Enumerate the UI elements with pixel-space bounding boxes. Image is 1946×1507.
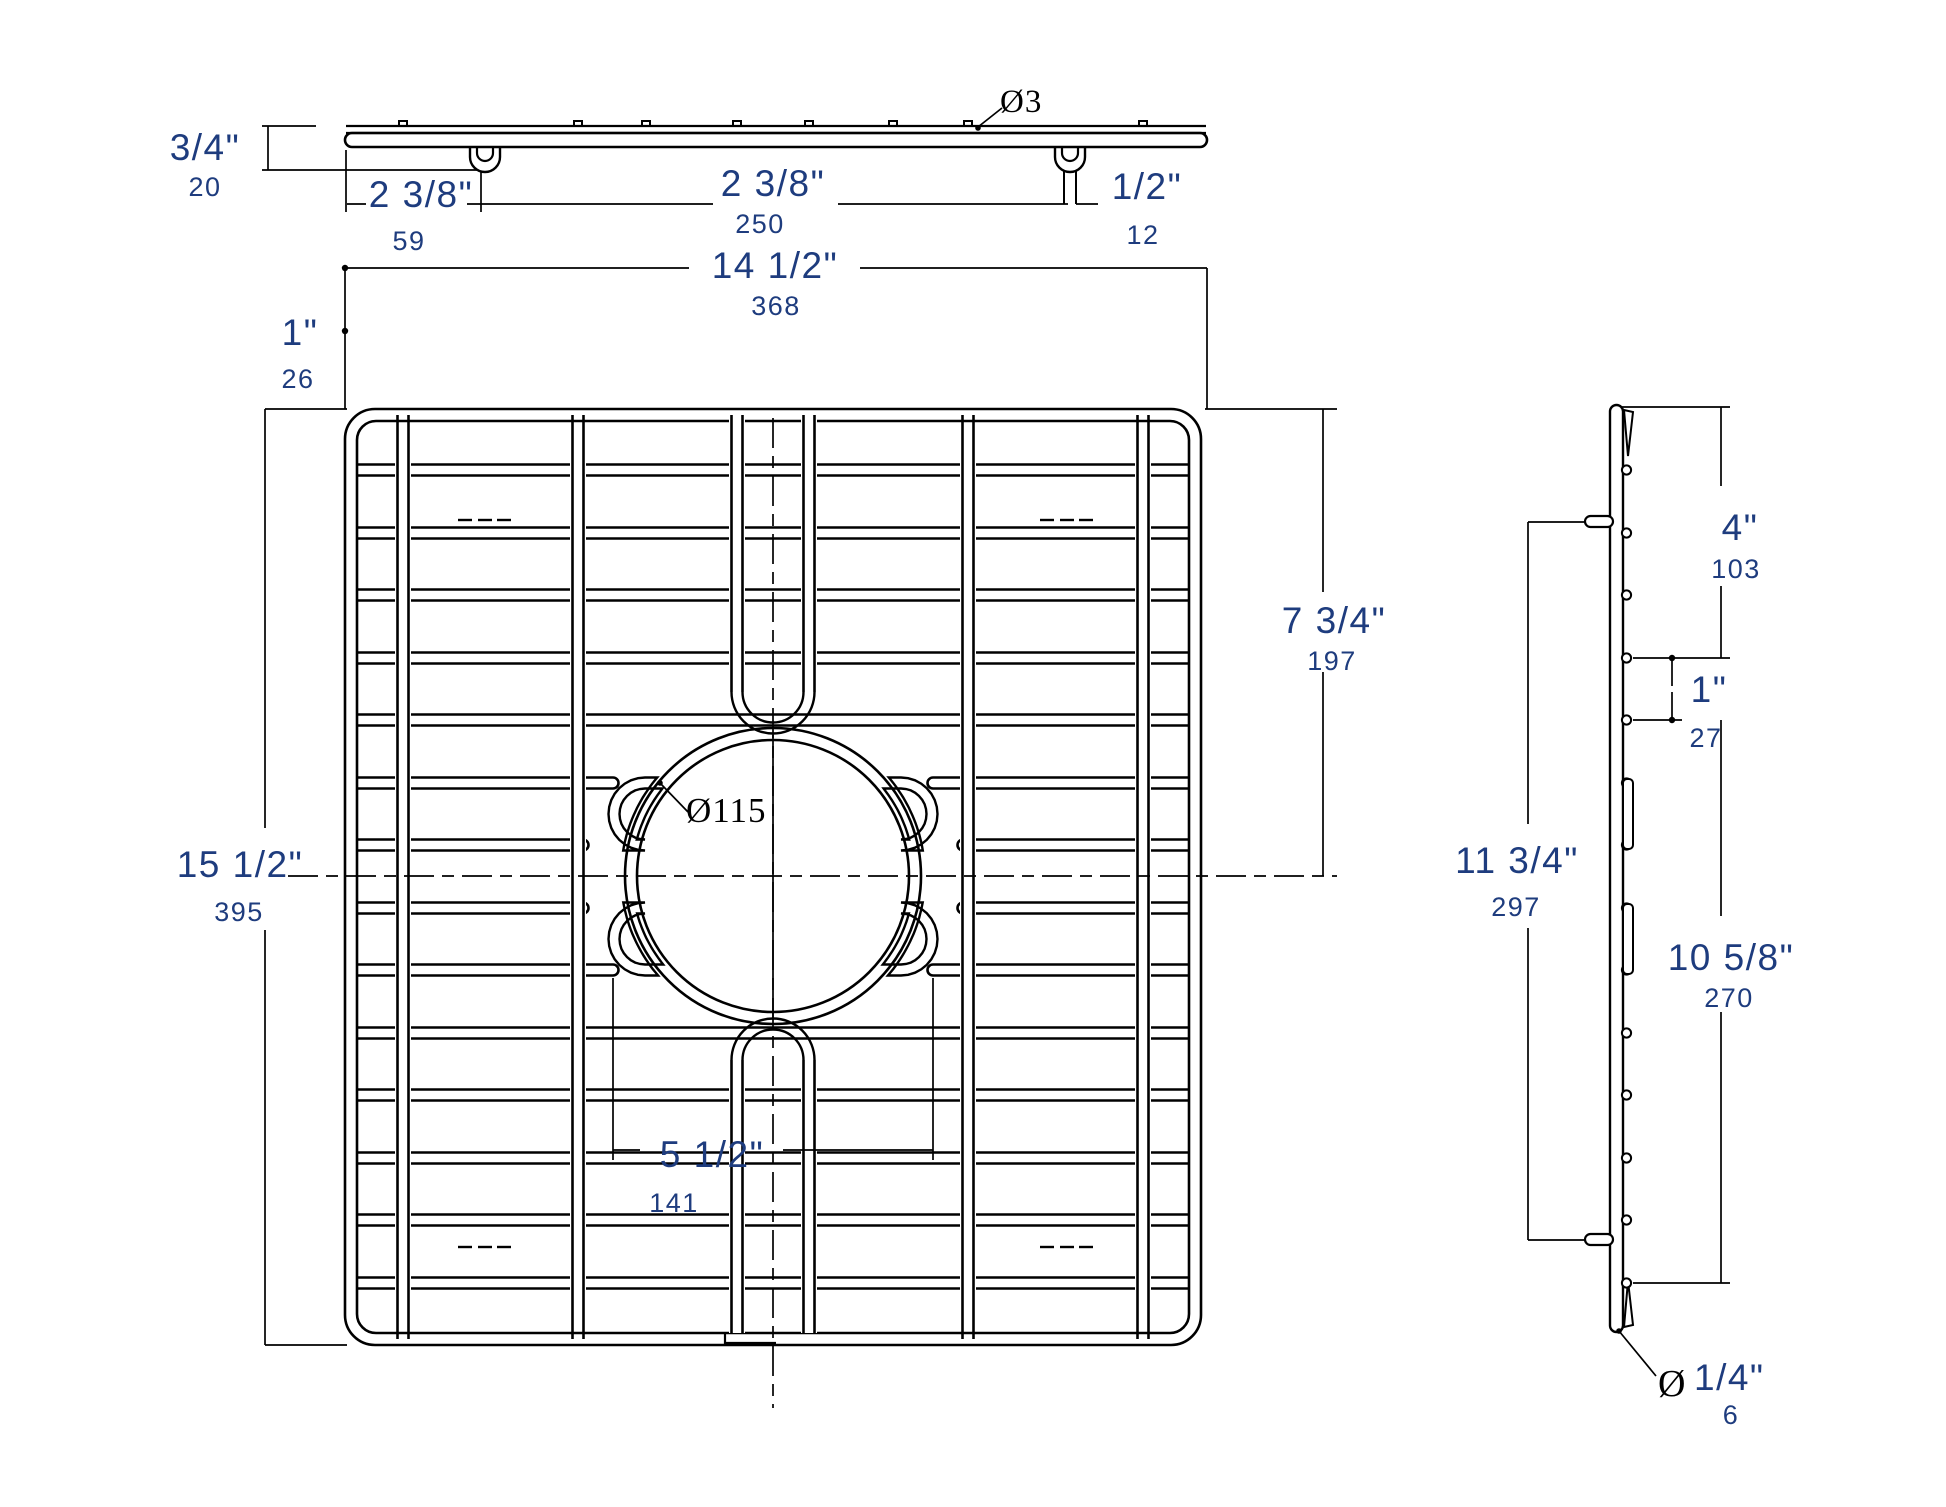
- dim-overall-depth-inch: 15 1/2": [177, 844, 304, 885]
- dim-foot-wire-mm: 6: [1723, 1400, 1740, 1430]
- front-plan-view: [288, 409, 1337, 1408]
- dim-edge-to-wire-inch: 1": [282, 312, 319, 353]
- dim-hole-diameter: Ø115: [686, 791, 766, 830]
- dim-side-top-span-inch: 4": [1722, 507, 1759, 548]
- dim-foot-offset-mm: 59: [392, 226, 425, 256]
- dim-bar-thickness-inch: 3/4": [170, 127, 241, 168]
- dim-top-to-center-mm: 197: [1307, 646, 1357, 676]
- dim-side-lower-span-mm: 270: [1704, 983, 1754, 1013]
- dimension-annotations: [262, 108, 1730, 1376]
- dim-side-wire-gap-mm: 27: [1689, 723, 1722, 753]
- dim-foot-wire-inch: 1/4": [1694, 1357, 1765, 1398]
- dim-foot-wire-symbol: Ø: [1658, 1363, 1686, 1405]
- dim-foot-width-inch: 1/2": [1112, 166, 1183, 207]
- dim-foot-spacing-inch: 2 3/8": [721, 163, 825, 204]
- dim-foot-spacing-mm: 250: [735, 209, 785, 239]
- dim-foot-width-mm: 12: [1126, 220, 1159, 250]
- dim-feet-spacing-mm: 297: [1491, 892, 1541, 922]
- technical-drawing: 3/4"202 3/8"592 3/8"2501/2"12Ø314 1/2"36…: [0, 0, 1946, 1507]
- dim-foot-offset-inch: 2 3/8": [369, 174, 473, 215]
- dim-edge-to-wire-mm: 26: [281, 364, 314, 394]
- dim-overall-width-mm: 368: [751, 291, 801, 321]
- dim-wire-diameter: Ø3: [1000, 84, 1042, 120]
- dimension-labels: 3/4"202 3/8"592 3/8"2501/2"12Ø314 1/2"36…: [170, 84, 1795, 1430]
- dim-overall-width-inch: 14 1/2": [712, 245, 839, 286]
- dim-top-to-center-inch: 7 3/4": [1282, 600, 1386, 641]
- side-profile-view: [1585, 405, 1633, 1332]
- drawing-canvas: 3/4"202 3/8"592 3/8"2501/2"12Ø314 1/2"36…: [0, 0, 1946, 1507]
- dim-side-wire-gap-inch: 1": [1691, 669, 1728, 710]
- dim-side-top-span-mm: 103: [1711, 554, 1761, 584]
- dim-overall-depth-mm: 395: [214, 897, 264, 927]
- dim-hole-offset-inch: 5 1/2": [660, 1134, 764, 1175]
- dim-feet-spacing-inch: 11 3/4": [1455, 840, 1579, 881]
- dim-hole-offset-mm: 141: [649, 1188, 699, 1218]
- dim-bar-thickness-mm: 20: [188, 172, 221, 202]
- dim-side-lower-span-inch: 10 5/8": [1668, 937, 1795, 978]
